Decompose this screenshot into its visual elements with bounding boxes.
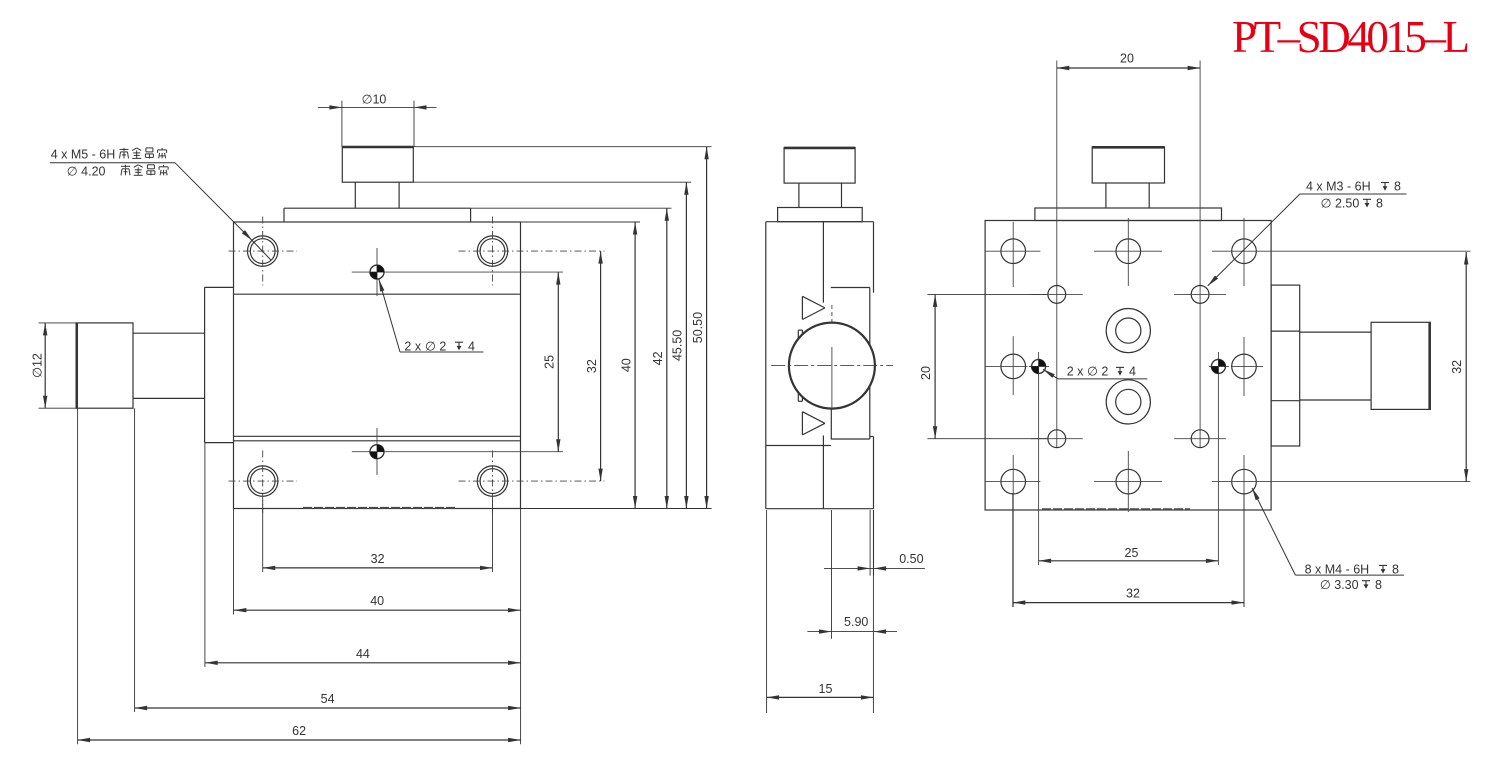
svg-text:32: 32 (1126, 587, 1140, 601)
svg-text:20: 20 (1120, 51, 1134, 65)
svg-text:40: 40 (619, 358, 633, 372)
svg-text:∅12: ∅12 (31, 353, 45, 378)
svg-text:∅10: ∅10 (362, 93, 387, 107)
svg-text:15: 15 (819, 682, 833, 696)
svg-text:4 x M3 - 6H: 4 x M3 - 6H (1306, 180, 1371, 194)
svg-text:2 x: 2 x (404, 339, 421, 353)
svg-text:8: 8 (1376, 197, 1383, 211)
svg-text:50.50: 50.50 (691, 312, 705, 343)
svg-text:8 x M4 - 6H: 8 x M4 - 6H (1305, 563, 1370, 577)
svg-text:54: 54 (321, 692, 335, 706)
svg-text:62: 62 (292, 724, 306, 738)
svg-text:∅ 2: ∅ 2 (1087, 365, 1108, 379)
svg-text:0.50: 0.50 (899, 552, 923, 566)
svg-text:32: 32 (371, 552, 385, 566)
svg-text:PT–SD4015–L: PT–SD4015–L (1232, 12, 1470, 62)
svg-text:4: 4 (1129, 365, 1136, 379)
svg-text:40: 40 (370, 594, 384, 608)
svg-text:4 x M5 - 6H: 4 x M5 - 6H (51, 147, 116, 161)
svg-text:20: 20 (919, 366, 933, 380)
svg-text:32: 32 (585, 359, 599, 373)
svg-text:8: 8 (1394, 180, 1401, 194)
svg-text:25: 25 (1125, 546, 1139, 560)
svg-text:45.50: 45.50 (671, 330, 685, 361)
svg-text:∅ 4.20: ∅ 4.20 (67, 164, 106, 178)
svg-text:2 x: 2 x (1067, 365, 1084, 379)
svg-text:∅ 2.50: ∅ 2.50 (1321, 197, 1360, 211)
svg-text:∅ 3.30: ∅ 3.30 (1320, 578, 1359, 592)
svg-text:5.90: 5.90 (844, 615, 868, 629)
svg-text:4: 4 (468, 339, 475, 353)
svg-text:44: 44 (356, 647, 370, 661)
svg-text:42: 42 (651, 351, 665, 365)
svg-text:25: 25 (543, 355, 557, 369)
svg-text:32: 32 (1450, 360, 1464, 374)
svg-text:∅ 2: ∅ 2 (425, 339, 446, 353)
svg-text:8: 8 (1392, 563, 1399, 577)
svg-text:8: 8 (1375, 578, 1382, 592)
